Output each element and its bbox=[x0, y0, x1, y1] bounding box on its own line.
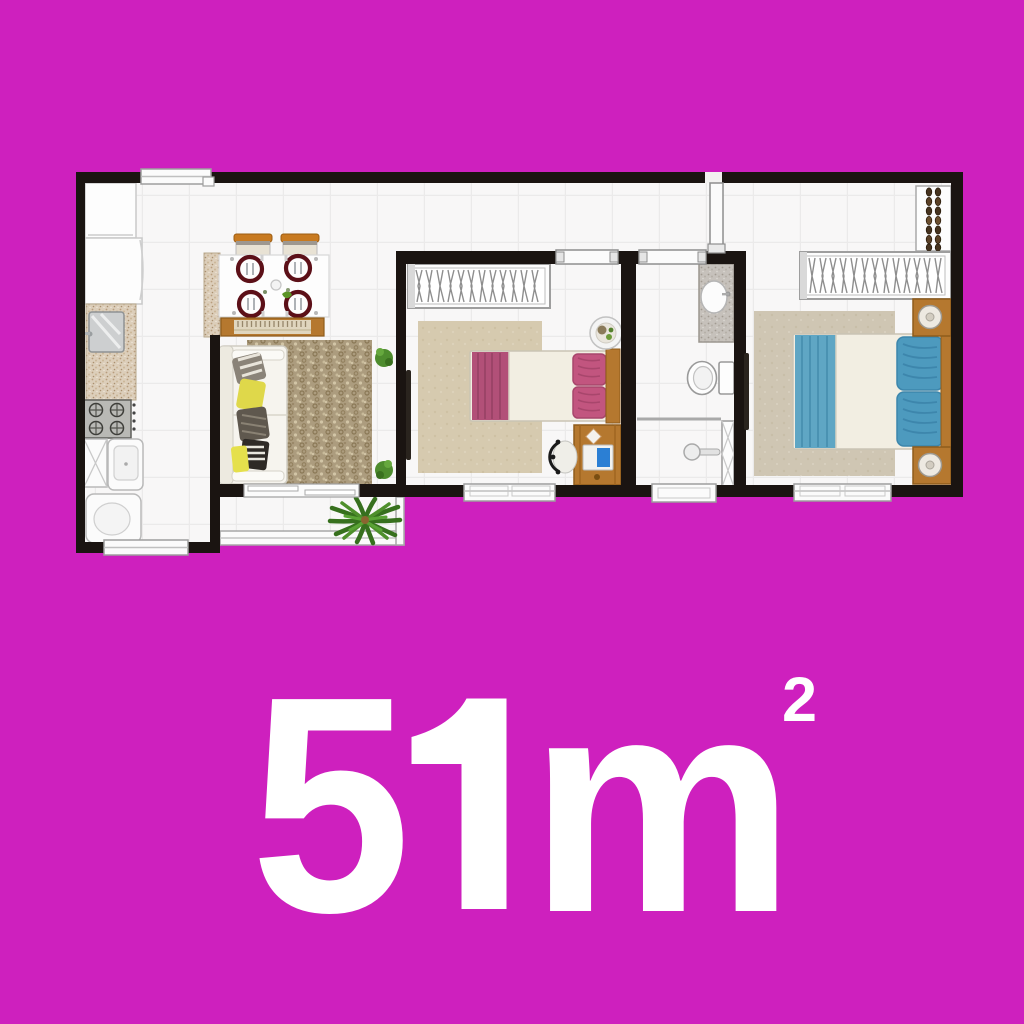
svg-text:2: 2 bbox=[782, 665, 817, 735]
svg-text:m: m bbox=[529, 633, 795, 977]
svg-text:5: 5 bbox=[251, 633, 411, 977]
